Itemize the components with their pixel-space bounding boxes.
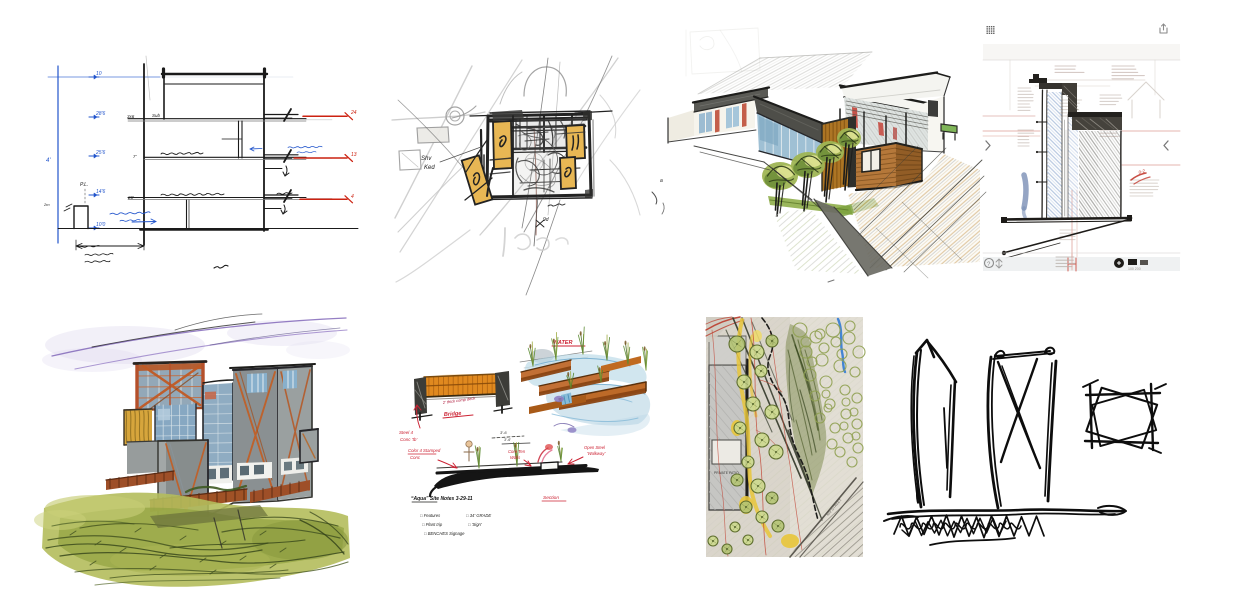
svg-text:25'6: 25'6 (95, 150, 106, 156)
svg-text:14'6: 14'6 (96, 189, 106, 195)
svg-text:□ BENCHES Signage: □ BENCHES Signage (424, 531, 465, 536)
svg-text:Sub: Sub (152, 113, 161, 118)
svg-text:Section: Section (543, 495, 559, 501)
svg-text:P.L.: P.L. (80, 182, 88, 188)
svg-text:3'-6′: 3'-6′ (504, 438, 511, 442)
svg-text:Color 4 Stamped: Color 4 Stamped (408, 448, 441, 453)
svg-text:Conc 'tb': Conc 'tb' (400, 437, 417, 442)
svg-text:Conc: Conc (410, 455, 421, 460)
svg-text:10: 10 (96, 71, 102, 77)
svg-text:24: 24 (350, 110, 357, 116)
svg-text:a: a (660, 178, 663, 184)
svg-text:“Aqua” Site Notes 3-29-11: “Aqua” Site Notes 3-29-11 (411, 496, 473, 502)
svg-text:Shv: Shv (421, 156, 432, 162)
svg-text:'Walkway': 'Walkway' (587, 451, 605, 456)
svg-text:2m: 2m (43, 202, 50, 207)
svg-text:□ 34' GRADE: □ 34' GRADE (466, 513, 491, 518)
svg-text:Open Steel: Open Steel (584, 445, 606, 450)
svg-text:□ Features: □ Features (420, 513, 441, 518)
svg-text:10'0: 10'0 (96, 222, 106, 228)
svg-text:7': 7' (133, 154, 137, 159)
svg-text:13: 13 (351, 152, 357, 158)
svg-text:28'6: 28'6 (95, 111, 106, 117)
svg-text:Ked: Ked (424, 165, 435, 171)
svg-text:Walls: Walls (510, 455, 521, 460)
svg-text:26': 26' (127, 195, 134, 200)
svg-text:3'-6: 3'-6 (500, 430, 507, 435)
svg-text:3x6: 3x6 (127, 114, 135, 119)
svg-text:□ Plant trip: □ Plant trip (422, 522, 443, 527)
svg-text:□ 'Sign': □ 'Sign' (468, 522, 482, 527)
svg-text:100 200: 100 200 (1128, 267, 1141, 271)
svg-text:Core Ten: Core Ten (508, 449, 526, 454)
svg-text:4: 4 (351, 194, 354, 200)
svg-text:Steel 4: Steel 4 (399, 430, 414, 435)
